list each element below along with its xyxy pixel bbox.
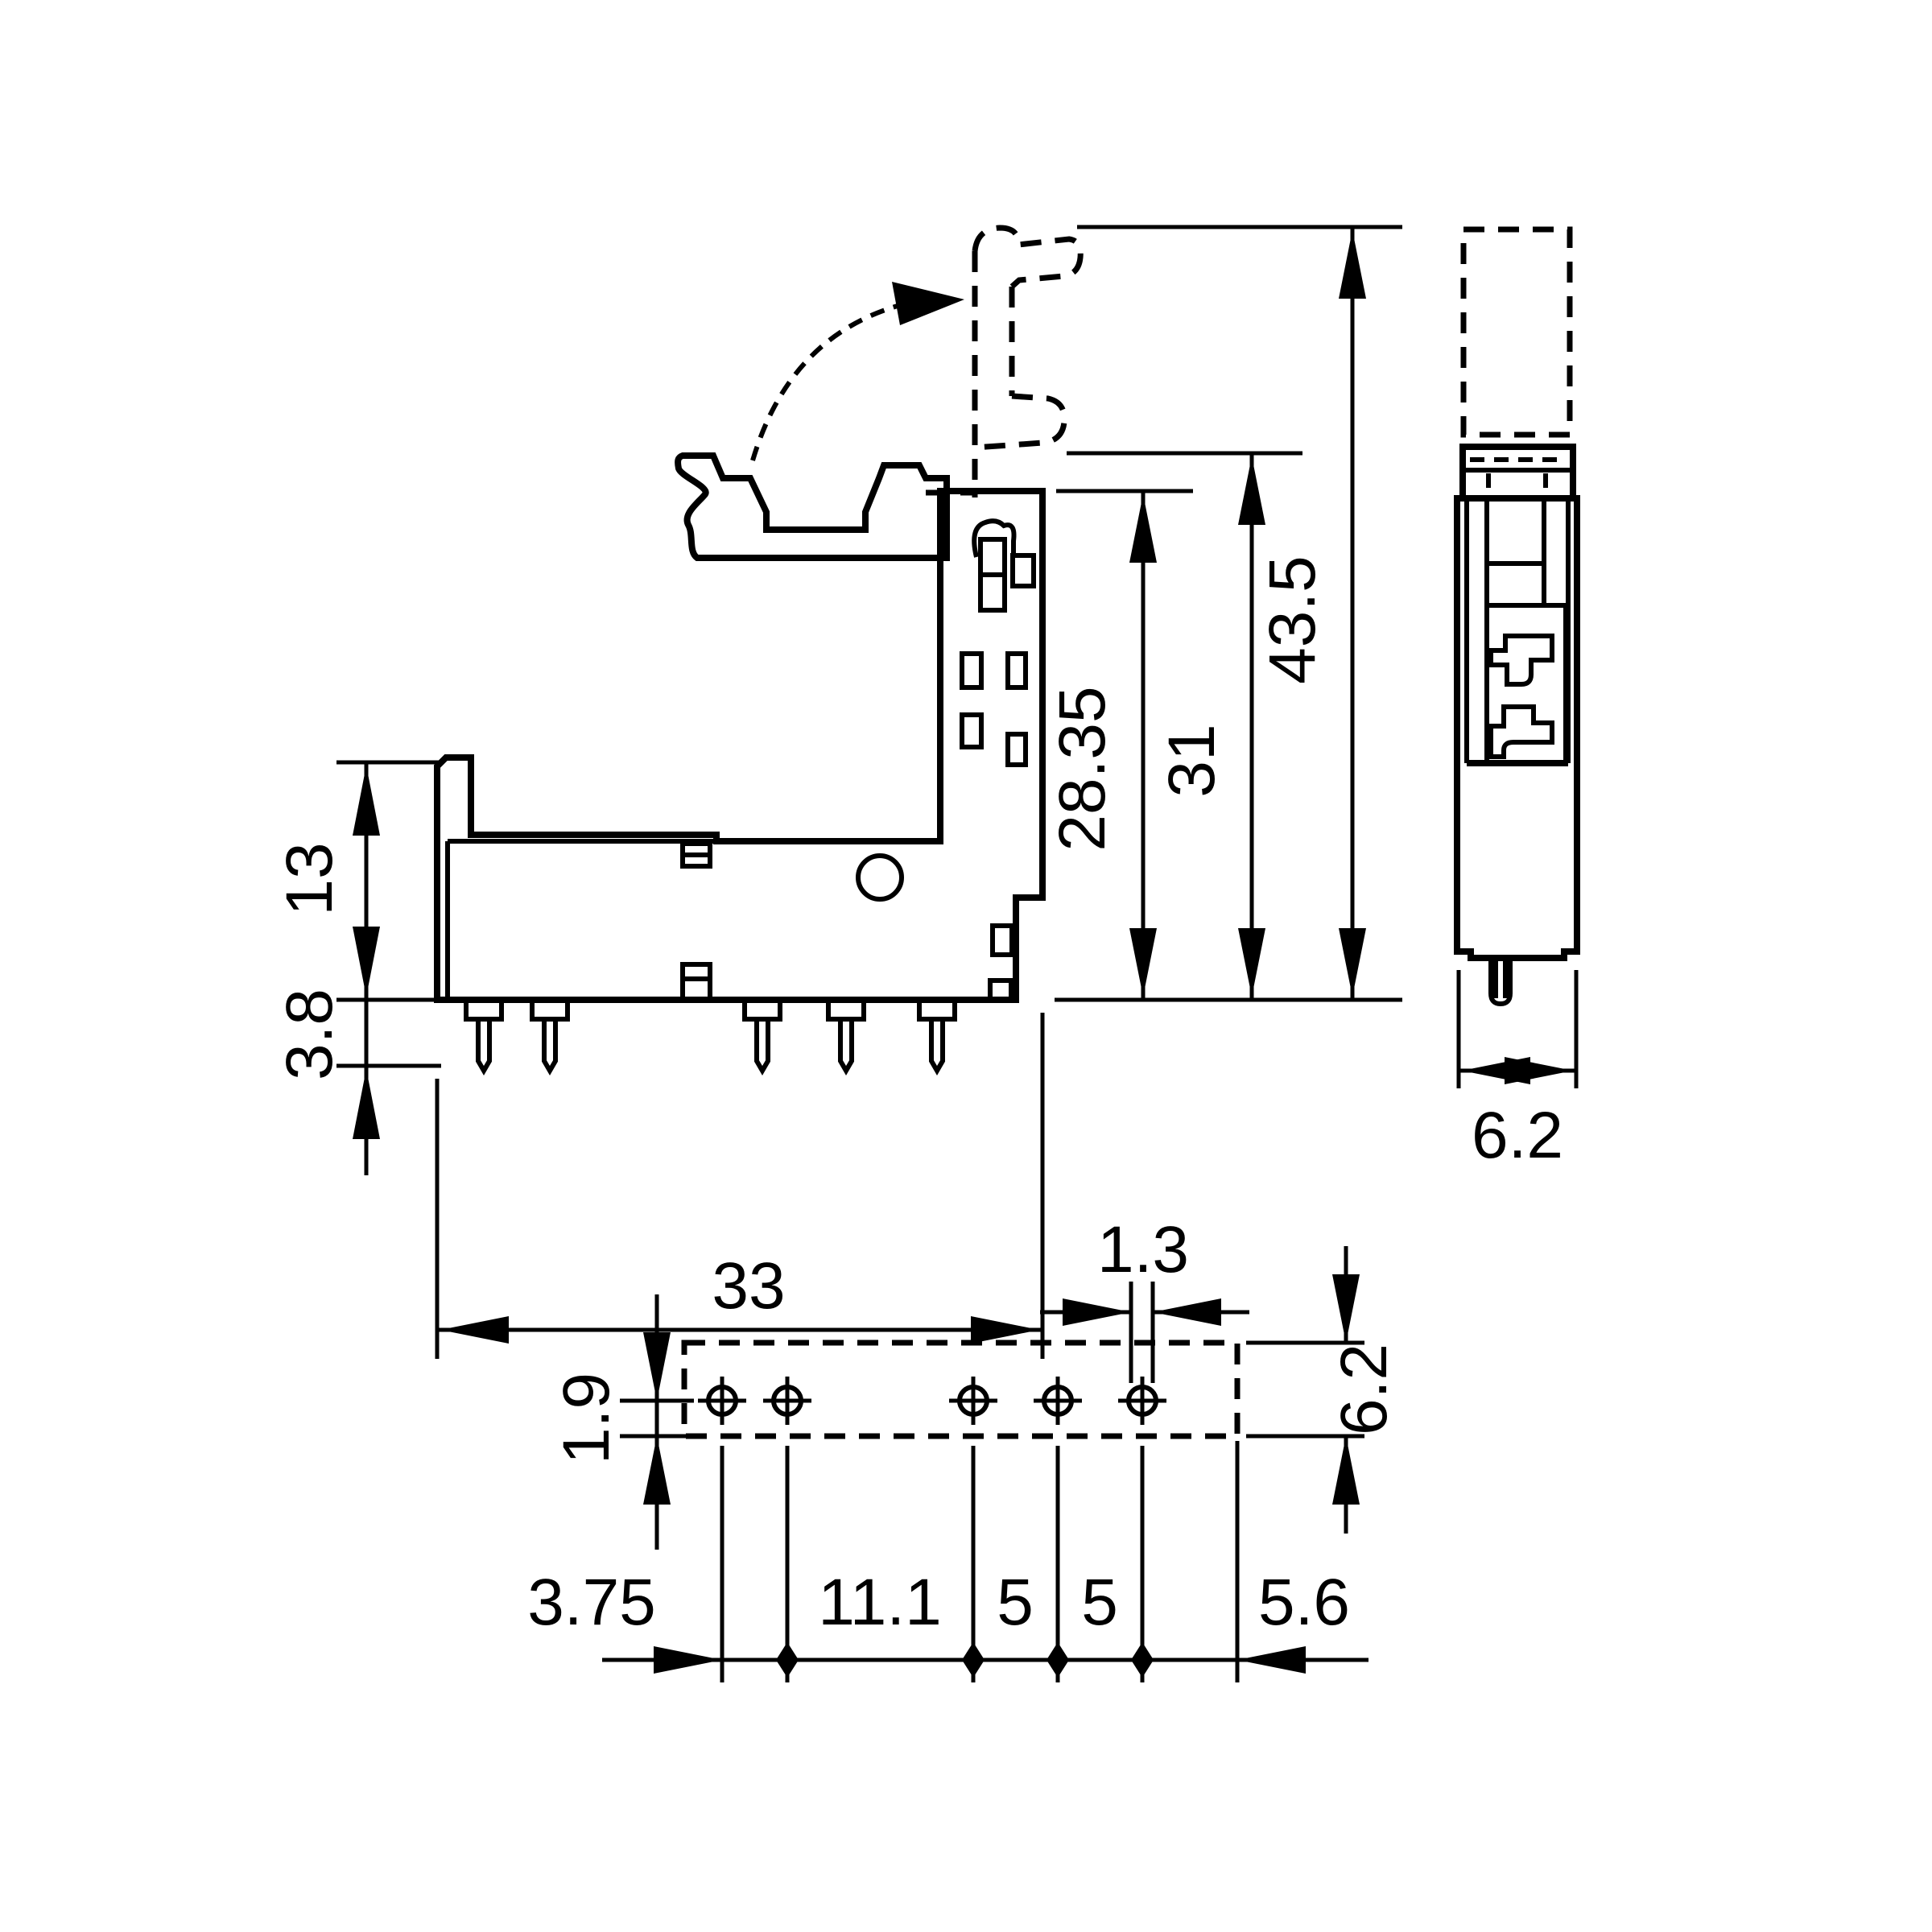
base-tab-lower xyxy=(683,964,710,1000)
dim-row-depth-62: 6.2 xyxy=(1246,1246,1401,1534)
dim-label-width: 33 xyxy=(712,1249,785,1323)
side-clip-raised-dashed xyxy=(1463,229,1570,435)
front-view: 33 13 3.8 28.35 xyxy=(273,227,1402,1359)
pin xyxy=(745,1000,780,1071)
hole xyxy=(1034,1377,1082,1425)
base-hole xyxy=(858,856,902,899)
pin xyxy=(532,1000,568,1071)
side-body-outline xyxy=(1457,498,1577,958)
dim-label-release-height: 31 xyxy=(1155,724,1228,797)
column-windows xyxy=(962,654,1026,765)
dim-label-pitch-56: 5.6 xyxy=(1258,1566,1350,1639)
side-view: 6.2 xyxy=(1457,229,1577,1172)
bottom-footprint-view: 1.3 6.2 1.9 xyxy=(527,1213,1401,1682)
rotation-arrow xyxy=(753,282,964,460)
socket-body-outline xyxy=(437,491,1042,1000)
dim-label-pitch-375: 3.75 xyxy=(527,1566,656,1639)
hole xyxy=(698,1377,746,1425)
dim-label-pitch-5b: 5 xyxy=(1081,1566,1118,1639)
pin xyxy=(919,1000,955,1071)
dim-label-total-height: 43.5 xyxy=(1256,555,1329,684)
dim-label-pin-width: 1.3 xyxy=(1097,1213,1189,1286)
dim-pin-width-13: 1.3 xyxy=(1040,1213,1249,1383)
chain-diamond xyxy=(962,1642,985,1678)
technical-drawing: 33 13 3.8 28.35 xyxy=(0,0,1932,1932)
side-clip-cap xyxy=(1463,447,1573,498)
socket-pins xyxy=(466,1000,955,1071)
pin xyxy=(466,1000,502,1071)
dim-total-height-435: 43.5 xyxy=(1077,227,1402,1000)
mounting-holes xyxy=(698,1377,1166,1425)
dim-rail-and-pins: 13 3.8 xyxy=(273,762,441,1175)
bottom-right-detail xyxy=(993,926,1012,955)
hole xyxy=(949,1377,997,1425)
dim-label-rail-height: 13 xyxy=(273,842,346,915)
retaining-clip xyxy=(678,456,947,558)
drawing-canvas: 33 13 3.8 28.35 xyxy=(0,0,1932,1932)
rotation-arrowhead-icon xyxy=(892,282,964,325)
base-tab-upper xyxy=(683,844,710,866)
hole xyxy=(763,1377,811,1425)
side-pin xyxy=(1491,958,1510,1004)
dim-side-width-62: 6.2 xyxy=(1459,970,1576,1172)
dim-label-row-depth: 6.2 xyxy=(1327,1344,1401,1435)
dim-label-side-width: 6.2 xyxy=(1472,1099,1563,1172)
chain-diamond xyxy=(1046,1642,1069,1678)
dim-label-pin-protrusion: 3.8 xyxy=(273,989,346,1080)
dim-label-pitch-5a: 5 xyxy=(997,1566,1034,1639)
hole xyxy=(1118,1377,1166,1425)
dim-label-body-height: 28.35 xyxy=(1046,686,1119,851)
dim-label-row-offset: 1.9 xyxy=(550,1373,623,1464)
dim-width-33: 33 xyxy=(437,1013,1042,1359)
side-internal-mechanism xyxy=(1467,498,1568,763)
pin xyxy=(828,1000,864,1071)
dim-label-pitch-111: 11.1 xyxy=(818,1566,942,1639)
latch-detail xyxy=(974,521,1034,610)
chain-diamond xyxy=(776,1642,799,1678)
retaining-clip-raised-dashed xyxy=(926,228,1080,497)
dim-row-offset-19: 1.9 xyxy=(550,1294,694,1550)
chain-diamond xyxy=(1131,1642,1154,1678)
